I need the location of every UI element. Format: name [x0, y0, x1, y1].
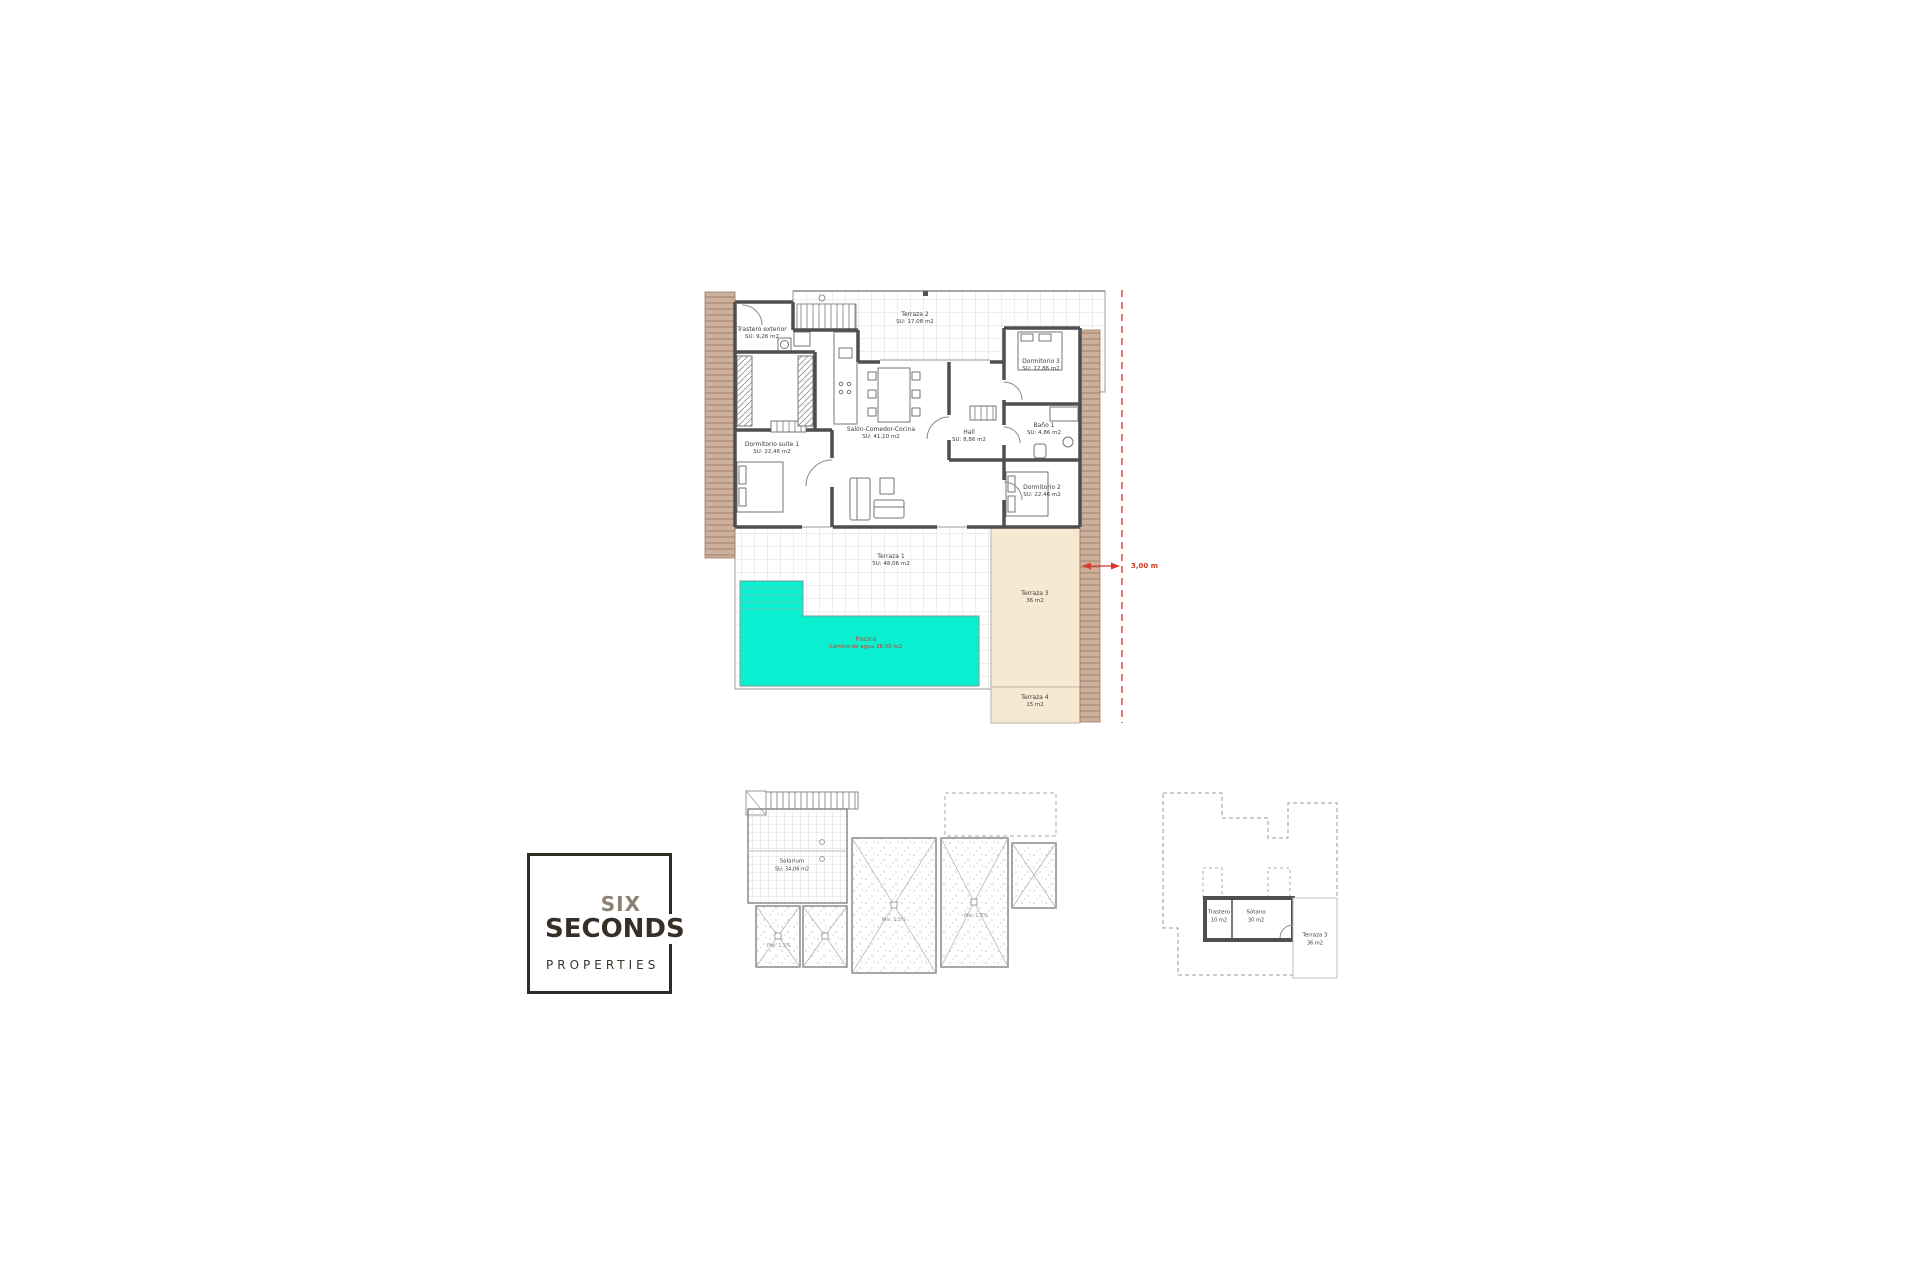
roof-plan: [746, 791, 1056, 973]
roof-stairs: [766, 792, 858, 809]
hatch-strip-right: [1080, 330, 1100, 722]
logo-six-text: SIX: [601, 892, 641, 916]
logo-seconds-text: SECONDS: [542, 914, 688, 944]
roof-hip-a: [756, 906, 800, 967]
roof-hip-right: [941, 838, 1008, 967]
plan-sheet: Trastero exterior SU: 9,26 m2 Terraza 2 …: [0, 0, 1920, 1280]
roof-slope-note: Pte. 1,5%: [767, 943, 791, 949]
plans-drawing: [0, 0, 1920, 1280]
hatch-strip-left: [705, 292, 735, 558]
room-label-trastero-exterior: Trastero exterior SU: 9,26 m2: [737, 326, 786, 342]
room-label-terraza-2: Terraza 2 SU: 17,08 m2: [896, 311, 933, 327]
room-label-hall: Hall SU: 8,86 m2: [952, 429, 986, 445]
room-label-terraza-3: Terraza 3 36 m2: [1021, 590, 1048, 606]
room-label-dormitorio-2: Dormitorio 2 SU: 22,46 m2: [1023, 484, 1061, 500]
room-label-dormitorio-3: Dormitorio 3 SU: 12,86 m2: [1022, 358, 1060, 374]
floor-plan: [705, 290, 1122, 723]
roof-slope-note: Pte. 1,5%: [882, 917, 906, 923]
roof-hip-center: [852, 838, 936, 973]
terraza3-area: [991, 527, 1080, 687]
solarium-grid: [748, 809, 847, 903]
six-seconds-logo: SIX SECONDS PROPERTIES: [527, 853, 672, 994]
roof-slope-note: Pte. 1,5%: [964, 913, 988, 919]
basement-label-sotano: Sótano 30 m2: [1246, 910, 1265, 925]
roof-hip-far-right: [1012, 843, 1056, 908]
room-label-salon-comedor-cocina: Salón-Comedor-Cocina SU: 41,10 m2: [847, 426, 915, 442]
basement-label-trastero: Trastero 10 m2: [1208, 910, 1230, 925]
dimension-label: 3,00 m: [1131, 562, 1158, 570]
pool-label: Piscina Lámina de agua 38,00 m2: [830, 636, 902, 652]
roof-dashed-outline: [945, 793, 1056, 836]
basement-label-terraza-3: Terraza 3 36 m2: [1302, 933, 1327, 948]
logo-properties-text: PROPERTIES: [546, 958, 659, 972]
room-label-bano-1: Baño 1 SU: 4,86 m2: [1027, 422, 1061, 438]
basement-plan: [1163, 793, 1337, 978]
room-label-terraza-1: Terraza 1 SU: 48,06 m2: [872, 553, 909, 569]
room-label-solarium: Solarium SU: 34,06 m2: [775, 859, 809, 874]
room-label-dormitorio-suite-1: Dormitorio suite 1 SU: 22,46 m2: [745, 441, 799, 457]
room-label-terraza-4: Terraza 4 15 m2: [1021, 694, 1048, 710]
roof-hip-b: [803, 906, 847, 967]
exterior-stairs: [797, 304, 856, 331]
